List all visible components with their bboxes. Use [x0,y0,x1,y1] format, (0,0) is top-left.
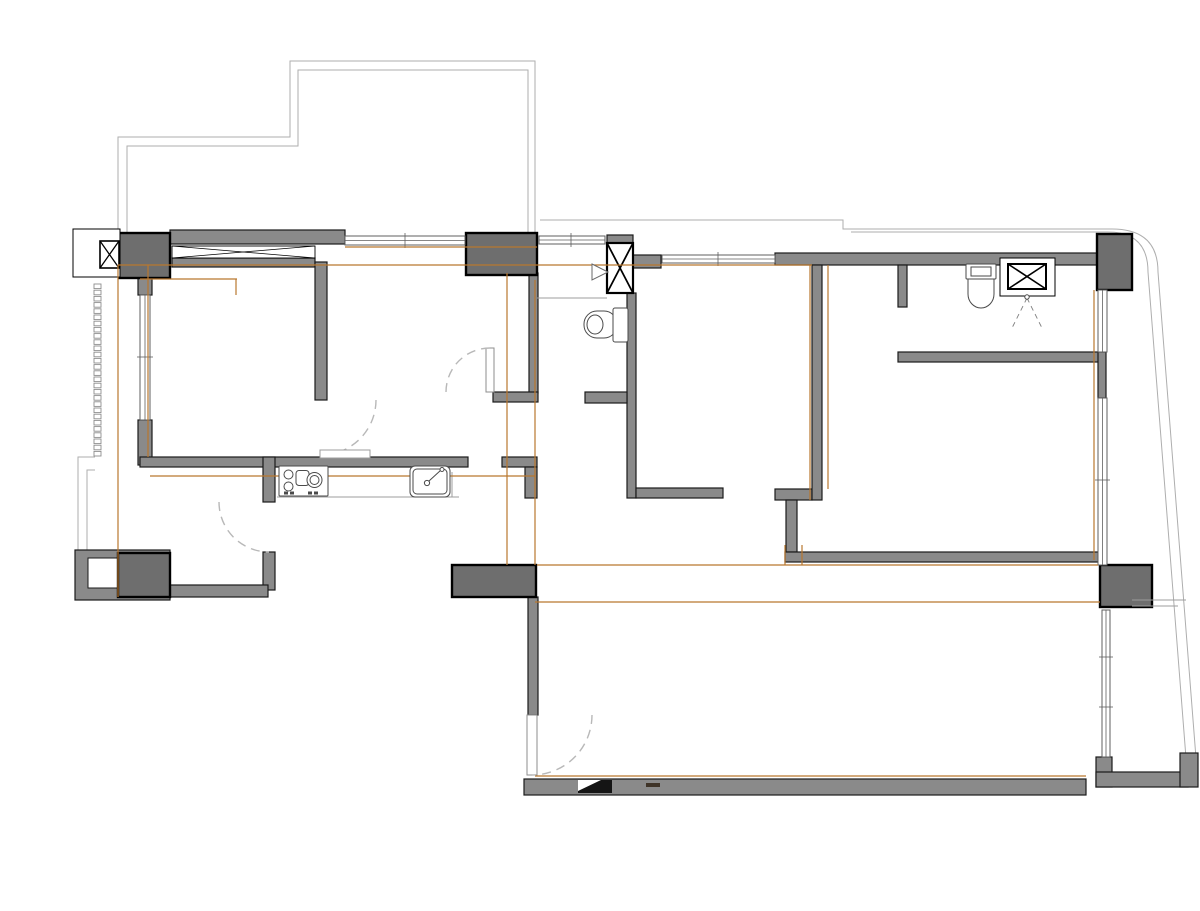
louver-square [94,383,101,388]
boundary-layer [78,61,1196,758]
living-west-wall [528,597,538,715]
bl-ledge-opening [88,558,118,588]
dining-wall-upper [263,457,275,502]
louver-square [94,309,101,314]
stove-knob [314,492,318,495]
floor-plan-drawing [0,0,1200,911]
louver-square [94,451,101,456]
door-arc-terrace [532,715,592,775]
bedroom2-stub [775,489,812,500]
louver-square [94,371,101,376]
sink-drain [424,480,429,485]
bath-cabinet-projection [1025,295,1029,299]
hall-south-wall [636,488,723,498]
site-boundary-line [127,70,528,235]
cabinet-projection-line [1027,298,1043,330]
column-bottom-right [1100,565,1152,607]
louver-square [94,296,101,301]
projection-layer [1011,298,1043,330]
dash-block [646,783,660,787]
walls-layer [75,230,1198,795]
ledge-rect [320,450,370,458]
entry-direction-icon [592,264,608,280]
toilet1-seat [587,315,603,334]
toilet2-tank-lid [971,267,991,276]
louver-square [94,445,101,450]
column-top-left [119,233,170,278]
bedroom1-closet-wall [315,262,327,400]
louver-square [94,290,101,295]
right-divider-wall [898,352,1100,362]
fixtures-layer [279,264,1029,793]
stove-burner-small-2 [284,482,293,491]
louver-square [94,377,101,382]
louver-square [94,321,101,326]
bedroom2-lower-wall [786,500,797,552]
louver-square [94,303,101,308]
louver-square [94,315,101,320]
louver-square [94,389,101,394]
louver-square [94,284,101,289]
stove-knob [284,492,288,495]
louver-square [94,420,101,425]
door-arc-bedroom1 [321,400,376,455]
louver-square [94,396,101,401]
br-balcony-right [1180,753,1198,787]
louver-square [94,427,101,432]
column-bottom-left [118,553,170,597]
toilet-horizontal-fixture [584,308,628,342]
door-leaf-center [486,348,494,392]
stove-burner-small-1 [284,470,293,479]
dining-wall-lower [263,552,275,590]
entry-stub [633,255,661,268]
bottom-left-wall [168,585,268,597]
louver-square [94,358,101,363]
louver-square [94,340,101,345]
toilet1-tank [613,308,628,342]
bath2-stub [898,265,907,307]
cabinet-knob [1025,295,1029,299]
stove-knob [308,492,312,495]
cabinet-projection-line [1011,298,1027,330]
kitchen-sink-fixture [410,466,450,497]
door-leaf-terrace [527,715,537,775]
stove-burner-large-inner [310,476,319,485]
stove-fixture [279,466,328,496]
louver-square [94,352,101,357]
louver-square [94,414,101,419]
louver-square [94,439,101,444]
louver-square [94,365,101,370]
louver-square [94,334,101,339]
sink-faucet-head [440,468,444,472]
toilet-vertical-fixture [966,264,996,308]
entry-arrow-triangle [592,264,608,280]
center-wall-vert [529,273,538,393]
louver-square [94,433,101,438]
louver-square [94,408,101,413]
mid-bottom-wall [785,552,1100,562]
louver-strip [94,284,101,456]
stove-knob [290,492,294,495]
bath1-south-stub [585,392,627,403]
louver-square [94,327,101,332]
louver-square [94,346,101,351]
right-wall-piece [1098,352,1106,398]
site-boundary-line [118,61,535,235]
site-boundary-line [851,232,1186,758]
site-boundary-line [87,470,95,552]
door-arc-center [446,348,490,392]
door-arc-dining [219,502,269,552]
floor-dash-marker [646,783,660,787]
left-wall-upper-stub [138,278,152,295]
bedroom2-west-wall [812,265,822,500]
top-wall-left [170,230,345,244]
toilet2-bowl [968,279,994,308]
br-balcony-bottom [1096,772,1188,787]
counter-ledge-outline [320,450,370,458]
column-top-right [1097,234,1132,290]
center-wall-horiz [493,392,538,402]
threshold-wedge-marker [578,780,612,793]
column-top-center [466,233,537,275]
shaft-cap [607,235,633,243]
sink-basin [413,469,447,494]
floor-plan-page [0,0,1200,911]
closet-base [172,258,315,267]
column-bottom-center [452,565,536,597]
louver-square [94,402,101,407]
